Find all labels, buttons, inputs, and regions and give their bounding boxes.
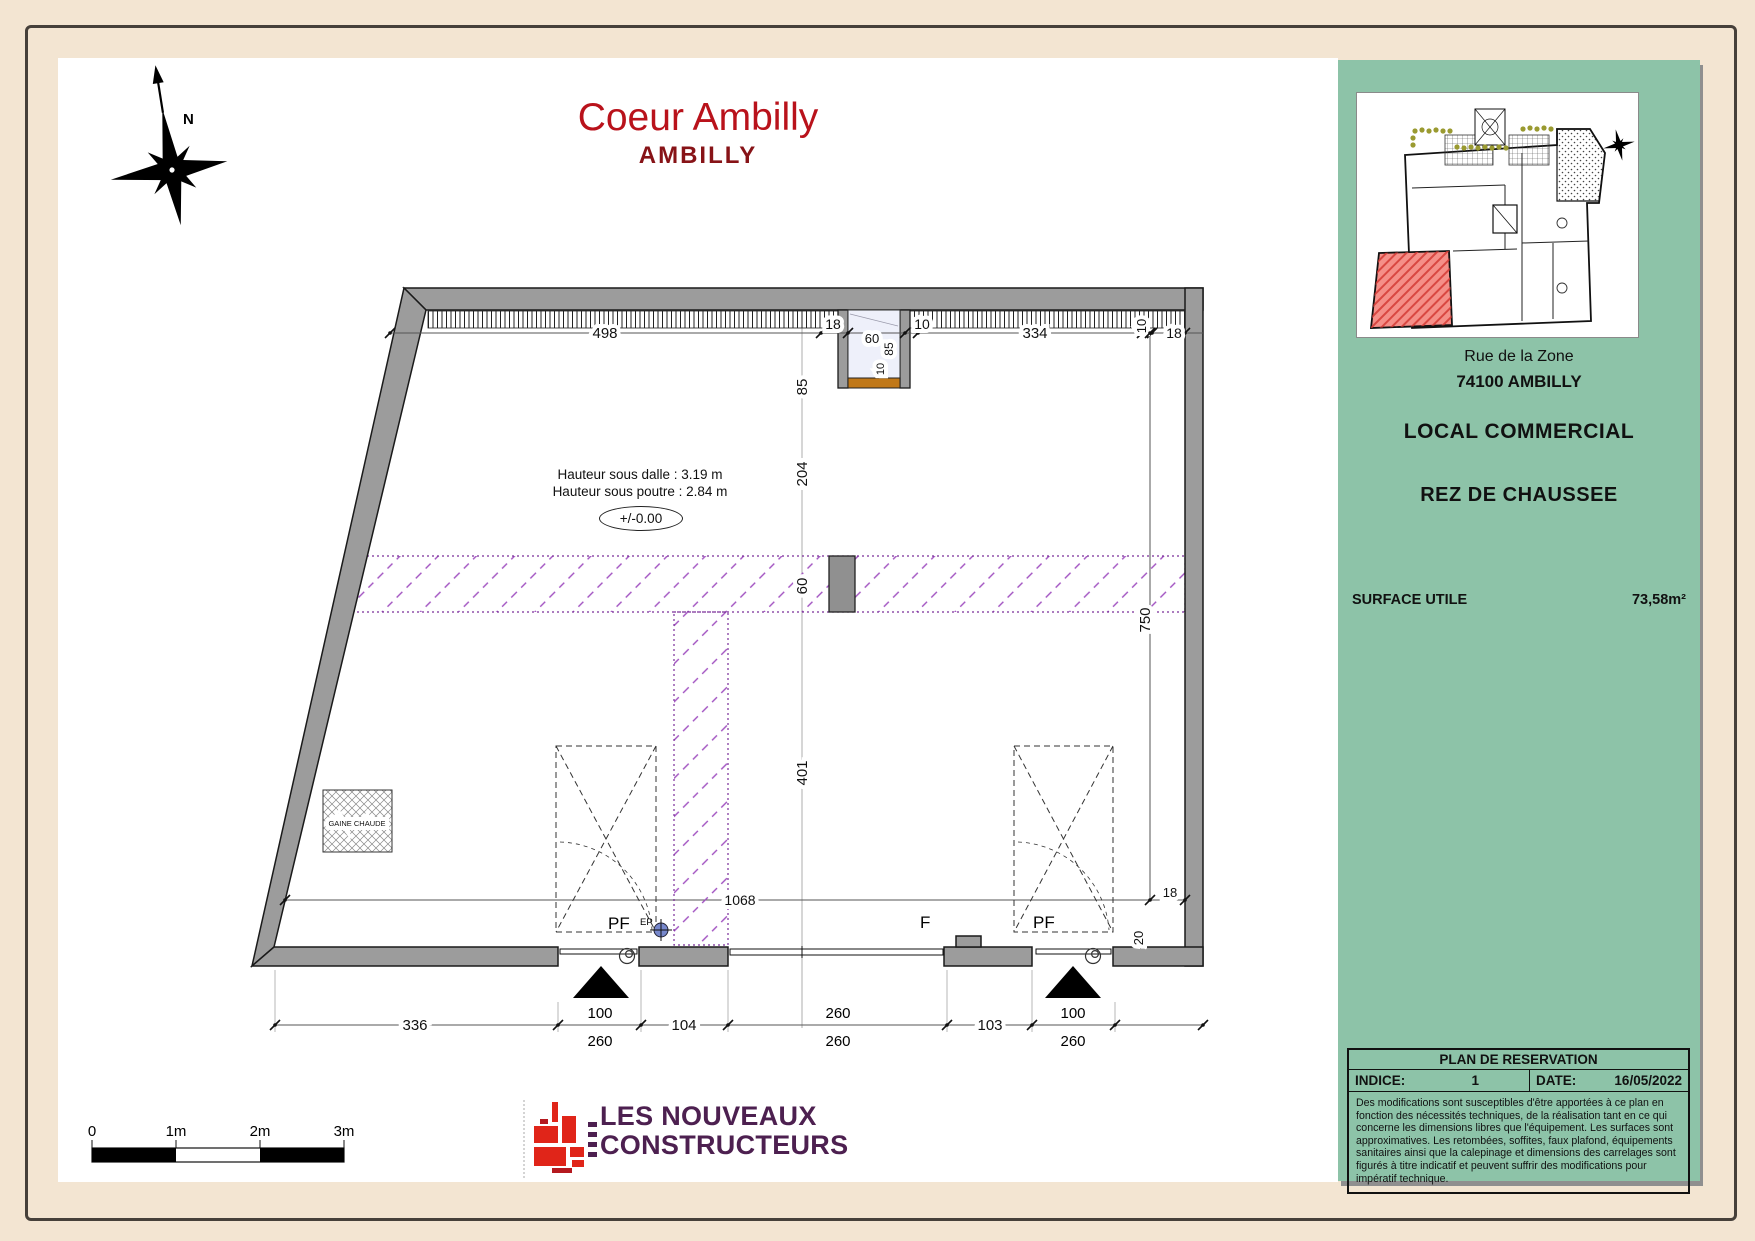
indice-value: 1	[1471, 1073, 1479, 1088]
date-value: 16/05/2022	[1614, 1073, 1682, 1088]
accessibility-icon-left	[620, 949, 635, 964]
bottom-wall-seg1	[252, 947, 558, 966]
date-label: DATE:	[1536, 1073, 1576, 1088]
bottom-wall-seg2	[639, 947, 728, 966]
svg-text:1068: 1068	[724, 892, 755, 908]
svg-text:18: 18	[1163, 885, 1177, 900]
table-meta-row: INDICE: 1 DATE: 16/05/2022	[1349, 1070, 1688, 1092]
dim-100-right: 100	[1060, 1005, 1085, 1022]
entrance-arrow-left	[573, 966, 629, 998]
surface-value: 73,58m²	[1632, 592, 1686, 608]
hauteur-poutre-text: Hauteur sous poutre : 2.84 m	[500, 483, 780, 500]
dim-10-top-right: 10	[1134, 319, 1149, 333]
dim-10-right-of-niche: 10	[914, 316, 930, 332]
table-disclaimer: Des modifications sont susceptibles d'êt…	[1349, 1092, 1688, 1192]
ceiling-reservation-band	[674, 612, 728, 945]
title-block: Coeur Ambilly AMBILLY	[58, 96, 1338, 170]
address-street: Rue de la Zone	[1338, 348, 1700, 366]
floor-level: REZ DE CHAUSSEE	[1338, 484, 1700, 507]
program-type: LOCAL COMMERCIAL	[1338, 420, 1700, 444]
date-cell: DATE: 16/05/2022	[1530, 1070, 1688, 1091]
entrance-arrow-right	[1045, 966, 1101, 998]
lnc-logo-text: LES NOUVEAUX CONSTRUCTEURS	[600, 1102, 848, 1160]
dim-336: 336	[402, 1017, 427, 1034]
svg-text:401: 401	[794, 760, 811, 785]
table-header: PLAN DE RESERVATION	[1349, 1050, 1688, 1070]
dim-18-top-right: 18	[1166, 325, 1182, 341]
entry-niche	[838, 310, 910, 388]
dim-103: 103	[977, 1017, 1002, 1034]
dim-260-right: 260	[1060, 1033, 1085, 1050]
project-city: AMBILLY	[58, 142, 1338, 170]
niche-door-sill	[848, 378, 900, 388]
svg-text:85: 85	[794, 379, 811, 396]
lnc-logo-icon	[524, 1100, 597, 1180]
surface-label: SURFACE UTILE	[1352, 592, 1467, 608]
svg-text:0: 0	[88, 1123, 96, 1140]
svg-text:2m: 2m	[250, 1123, 271, 1140]
bottom-wall-bump	[956, 936, 981, 947]
svg-text:20: 20	[1131, 931, 1146, 945]
bottom-wall-seg3	[944, 947, 1032, 966]
logo-line2: CONSTRUCTEURS	[600, 1131, 848, 1160]
pf-right-label: PF	[1033, 913, 1055, 932]
dim-260-left: 260	[587, 1033, 612, 1050]
dim-100-left: 100	[587, 1005, 612, 1022]
insulation-strip-left	[428, 311, 838, 328]
left-slanted-wall	[252, 288, 426, 966]
svg-text:3m: 3m	[334, 1123, 355, 1140]
address-city: 74100 AMBILLY	[1338, 372, 1700, 392]
svg-text:750: 750	[1137, 607, 1154, 632]
center-column-dimensions: 85 204 60 401	[794, 379, 811, 786]
top-wall	[404, 288, 1203, 310]
logo-line1: LES NOUVEAUX	[600, 1102, 848, 1131]
svg-text:85: 85	[882, 342, 896, 356]
inset-compass-icon	[1600, 126, 1638, 164]
ceiling-reservation-strip	[354, 556, 1185, 612]
svg-text:60: 60	[794, 578, 811, 595]
svg-text:10: 10	[875, 363, 887, 375]
pf-left-label: PF	[608, 914, 630, 933]
f-center-label: F	[920, 913, 930, 932]
hauteur-dalle-text: Hauteur sous dalle : 3.19 m	[500, 466, 780, 483]
dim-334: 334	[1022, 325, 1047, 342]
dim-260-bottom: 260	[825, 1033, 850, 1050]
svg-text:1m: 1m	[166, 1123, 187, 1140]
gaine-chaude-label: GAINE CHAUDE	[328, 819, 385, 828]
info-panel: Rue de la Zone 74100 AMBILLY LOCAL COMME…	[1338, 60, 1700, 1181]
accessibility-icon-right	[1086, 949, 1101, 964]
right-dimensions: 750 1068 18 20	[280, 328, 1190, 945]
project-title: Coeur Ambilly	[58, 96, 1338, 140]
column	[829, 556, 855, 612]
surface-row: SURFACE UTILE 73,58m²	[1352, 592, 1686, 608]
location-inset	[1356, 92, 1639, 338]
height-annotations: Hauteur sous dalle : 3.19 m Hauteur sous…	[500, 466, 780, 500]
indice-label: INDICE:	[1355, 1073, 1405, 1088]
site-key-plan	[1357, 93, 1638, 337]
indice-cell: INDICE: 1	[1349, 1070, 1530, 1091]
dim-104: 104	[671, 1017, 696, 1034]
svg-text:204: 204	[794, 461, 811, 486]
right-wall	[1185, 288, 1203, 966]
reserve-box-right	[1014, 746, 1113, 932]
level-marker: +/-0.00	[599, 506, 683, 531]
dim-260-top: 260	[825, 1005, 850, 1022]
dim-498: 498	[592, 325, 617, 342]
bottom-wall-seg4	[1113, 947, 1203, 966]
ep-label: EP	[640, 917, 653, 928]
dim-18-top: 18	[825, 316, 841, 332]
reserve-box-left	[556, 746, 656, 932]
scale-bar: 0 1m 2m 3m	[88, 1123, 355, 1162]
floor-plan-sheet: { "title": { "line1": "Coeur Ambilly", "…	[0, 0, 1755, 1241]
reservation-table: PLAN DE RESERVATION INDICE: 1 DATE: 16/0…	[1347, 1048, 1690, 1194]
svg-text:60: 60	[865, 331, 879, 346]
gaine-chaude-box: GAINE CHAUDE	[323, 790, 392, 852]
